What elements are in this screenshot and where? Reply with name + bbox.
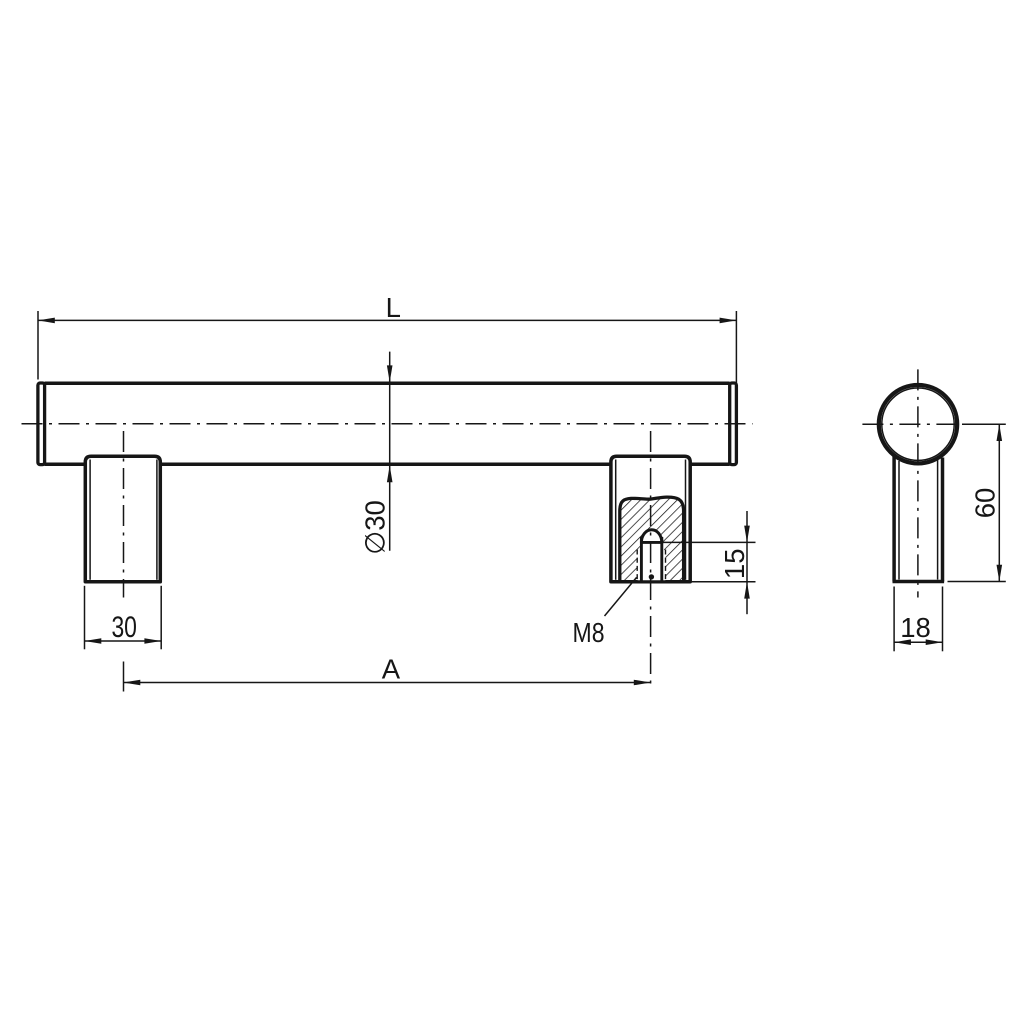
svg-text:18: 18 [900, 612, 931, 643]
svg-text:M8: M8 [573, 617, 605, 648]
svg-text:60: 60 [969, 488, 1000, 519]
svg-text:∅30: ∅30 [360, 500, 391, 555]
svg-text:L: L [386, 292, 401, 323]
svg-text:A: A [382, 654, 401, 685]
svg-text:30: 30 [111, 611, 137, 644]
svg-text:15: 15 [719, 549, 750, 580]
